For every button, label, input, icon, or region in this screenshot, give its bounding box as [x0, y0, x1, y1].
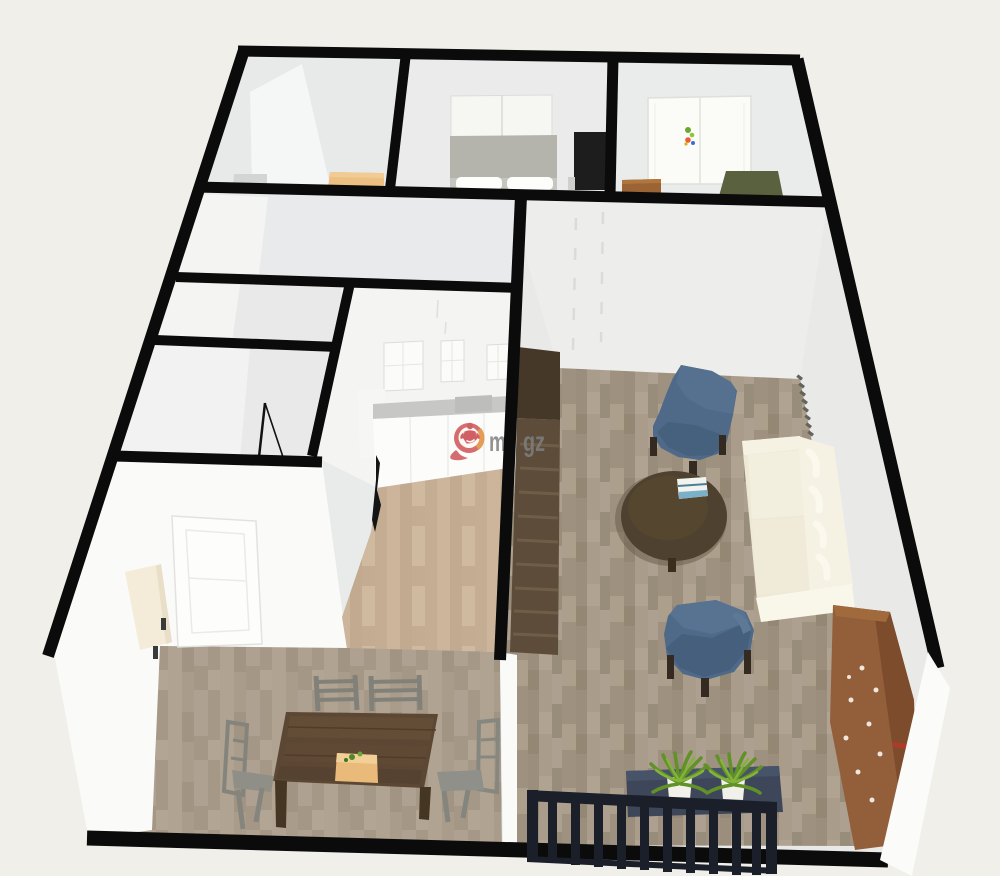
svg-text:gz: gz — [523, 426, 545, 457]
